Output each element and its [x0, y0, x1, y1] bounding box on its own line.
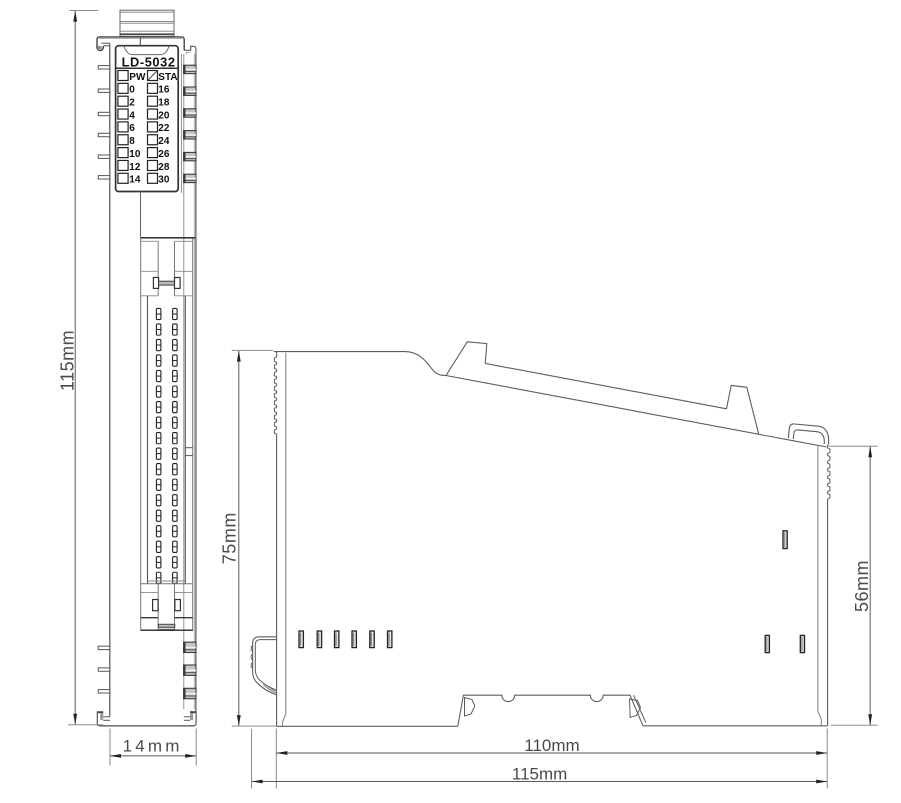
svg-text:28: 28: [158, 162, 170, 173]
svg-text:30: 30: [158, 175, 170, 186]
svg-text:6: 6: [129, 123, 135, 134]
svg-text:2: 2: [129, 98, 135, 109]
svg-text:22: 22: [158, 123, 170, 134]
svg-text:STA: STA: [158, 72, 177, 83]
svg-text:4: 4: [129, 110, 135, 121]
svg-text:75mm: 75mm: [220, 512, 240, 564]
svg-text:12: 12: [129, 162, 141, 173]
svg-text:LD-5032: LD-5032: [122, 55, 176, 70]
svg-text:14: 14: [129, 175, 141, 186]
svg-text:115mm: 115mm: [512, 764, 567, 783]
svg-text:16: 16: [158, 85, 170, 96]
svg-text:115mm: 115mm: [58, 330, 78, 391]
svg-text:10: 10: [129, 149, 141, 160]
svg-text:14mm: 14mm: [123, 736, 183, 755]
svg-text:110mm: 110mm: [524, 736, 579, 755]
svg-text:18: 18: [158, 98, 170, 109]
svg-text:0: 0: [129, 85, 135, 96]
svg-text:26: 26: [158, 149, 170, 160]
svg-text:20: 20: [158, 110, 170, 121]
svg-text:24: 24: [158, 136, 170, 147]
svg-text:56mm: 56mm: [852, 560, 872, 612]
svg-text:8: 8: [129, 136, 135, 147]
svg-text:PW: PW: [129, 72, 146, 83]
